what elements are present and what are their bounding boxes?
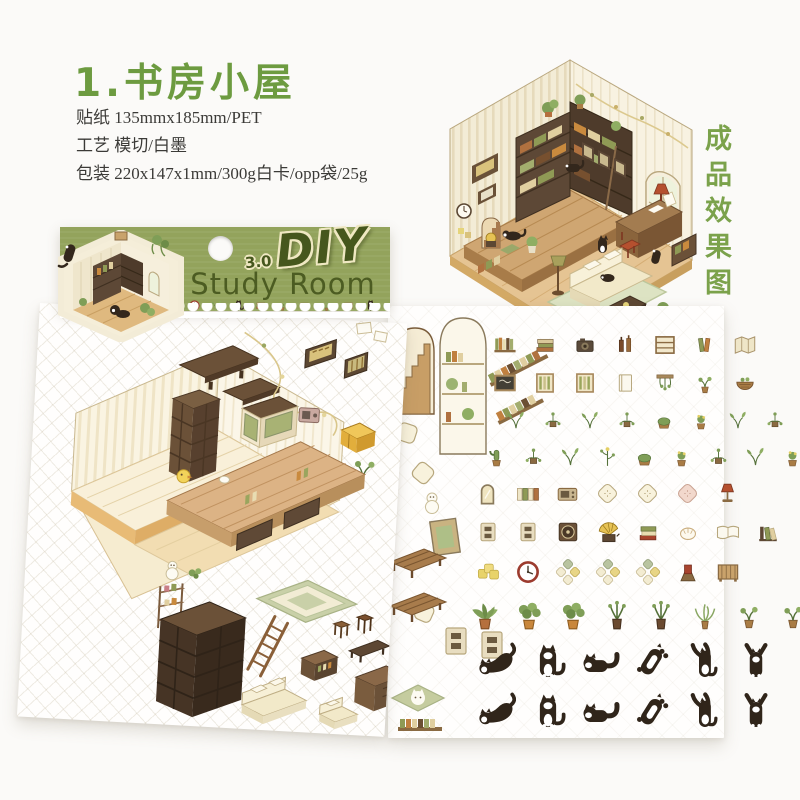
gold-frame-sticker (305, 338, 337, 370)
palm-plant-sticker (468, 598, 502, 632)
book-row-sticker (492, 332, 518, 358)
book-stack-red-sticker (634, 518, 662, 546)
product-name: Study Room (178, 267, 388, 301)
sticker-row (476, 642, 776, 682)
furniture-sticker-sheet (17, 303, 408, 737)
book-files-sticker (514, 480, 541, 507)
slat-shelf-sticker (652, 332, 678, 358)
yellow-crate-sticker (340, 422, 376, 454)
sprout-pot-sticker (692, 370, 718, 396)
toy-camera-sticker (572, 332, 598, 358)
flower-pot-sticker (689, 408, 713, 432)
white-box-frames-sticker (356, 322, 388, 343)
sprig-sticker (504, 408, 528, 432)
sticker-row (476, 692, 776, 732)
small-items-sticker-sheet (388, 306, 724, 738)
hanging-plant-sticker (652, 370, 678, 396)
low-cabinet-sticker (300, 649, 338, 682)
open-book-sticker (714, 518, 742, 546)
cat-hang-sticker (736, 692, 776, 732)
wall-clock-left (457, 204, 471, 218)
stool-sticker (356, 614, 373, 634)
basket-sticker (732, 370, 758, 396)
cat-stretch-sticker (476, 692, 516, 732)
spec-packaging: 包装 220x147x1mm/300g白卡/opp袋/25g (76, 160, 367, 188)
sofa-sticker (241, 675, 308, 726)
potted-lush-sticker (512, 598, 546, 632)
potted-slim-sticker (600, 598, 634, 632)
cushion-set-sticker (634, 558, 662, 586)
sprig-sticker (578, 408, 602, 432)
sticker-row (492, 332, 758, 358)
sprig-sticker (743, 444, 768, 469)
ladder-sticker (248, 615, 288, 677)
potted-lush-sticker (556, 598, 590, 632)
book-strip-sticker (398, 719, 442, 731)
blackboard-sticker (492, 370, 518, 396)
dark-bookshelf-sticker (155, 599, 246, 720)
fern-plant-sticker (688, 598, 722, 632)
lean-books-sticker (692, 332, 718, 358)
sprig-drape-sticker (615, 408, 639, 432)
spec-list: 贴纸 135mmx185mm/PET 工艺 模切/白墨 包装 220x147x1… (76, 104, 367, 188)
cat-sit-sticker (528, 642, 568, 682)
spec-process: 工艺 模切/白墨 (76, 132, 367, 160)
product-page: { "page": {"background": "#fbfaf8"}, "he… (0, 0, 800, 800)
sticker-row (484, 444, 800, 469)
sprig-drape-sticker (763, 408, 787, 432)
sticker-row (468, 598, 800, 632)
bench-sticker (390, 549, 446, 622)
sticky-notes-sticker (474, 558, 502, 586)
cat-rug-sticker (392, 685, 444, 711)
book-stand-sticker (674, 558, 702, 586)
lamp-red-sticker (714, 480, 741, 507)
arch-bookshelf-sticker (440, 318, 486, 454)
sticker-row (474, 558, 742, 586)
room-thumbnail (57, 230, 185, 342)
sprig-drape-sticker (521, 444, 546, 469)
cubby-shelf-sticker (168, 389, 220, 483)
bookend-sticker (754, 518, 782, 546)
white-book-sticker (612, 370, 638, 396)
flower-pot-sticker (669, 444, 694, 469)
wall-clock-sticker (514, 558, 542, 586)
cat-climb-sticker (684, 642, 724, 682)
sprout-pot-sticker (732, 598, 766, 632)
moss-pot-sticker (632, 444, 657, 469)
sprig-sticker (558, 444, 583, 469)
radio-box-sticker (554, 480, 581, 507)
folded-map-sticker (732, 332, 758, 358)
bench-sticker (348, 639, 389, 664)
sprout-pot-sticker (776, 598, 800, 632)
sprig-tall-sticker (595, 444, 620, 469)
cat-lie-sticker (580, 692, 620, 732)
cushion-set-sticker (554, 558, 582, 586)
spec-sticker-size: 贴纸 135mmx185mm/PET (76, 104, 367, 132)
stool-sticker (333, 621, 350, 639)
sticker-row (504, 408, 787, 432)
sprig-drape-sticker (541, 408, 565, 432)
sprig-sticker (726, 408, 750, 432)
book-stack-sticker (532, 332, 558, 358)
cat-sit-sticker (528, 692, 568, 732)
page-title: 1.书房小屋 (74, 52, 296, 108)
photo-frame-sticker (430, 518, 460, 555)
mini-radio-sticker (299, 408, 320, 423)
sticker-row (474, 518, 782, 546)
cat-stretch-sticker (476, 642, 516, 682)
window-slat-sticker (572, 370, 598, 396)
package-card: 3.0 DIY Study Room (60, 227, 390, 311)
snowman-sticker (426, 493, 439, 514)
bun-sticker (674, 518, 702, 546)
flower-pot-sticker (780, 444, 800, 469)
mini-cabinet-sticker (714, 558, 742, 586)
hang-hole (208, 236, 233, 261)
switch-plate-sticker (474, 518, 502, 546)
gramophone-sticker (594, 518, 622, 546)
sticker-row (492, 370, 758, 396)
cat-hang-sticker (736, 642, 776, 682)
armchair-sticker (319, 696, 359, 730)
cushion-sticker (634, 480, 661, 507)
sprig-drape-sticker (706, 444, 731, 469)
moss-pot-sticker (652, 408, 676, 432)
bottles-sticker (612, 332, 638, 358)
cat-lie-sticker (580, 642, 620, 682)
mirror-sticker (474, 480, 501, 507)
cushion-sticker (594, 480, 621, 507)
switch-plate-sticker (514, 518, 542, 546)
cat-belly-sticker (632, 642, 672, 682)
slat-frame-sticker (344, 351, 367, 379)
cat-climb-sticker (684, 692, 724, 732)
cushion-pink-sticker (674, 480, 701, 507)
speaker-box-sticker (554, 518, 582, 546)
cat-belly-sticker (632, 692, 672, 732)
cactus-sticker (484, 444, 509, 469)
cushion-set-sticker (594, 558, 622, 586)
window-slat-sticker (532, 370, 558, 396)
potted-slim-sticker (644, 598, 678, 632)
sticker-row (474, 480, 741, 507)
